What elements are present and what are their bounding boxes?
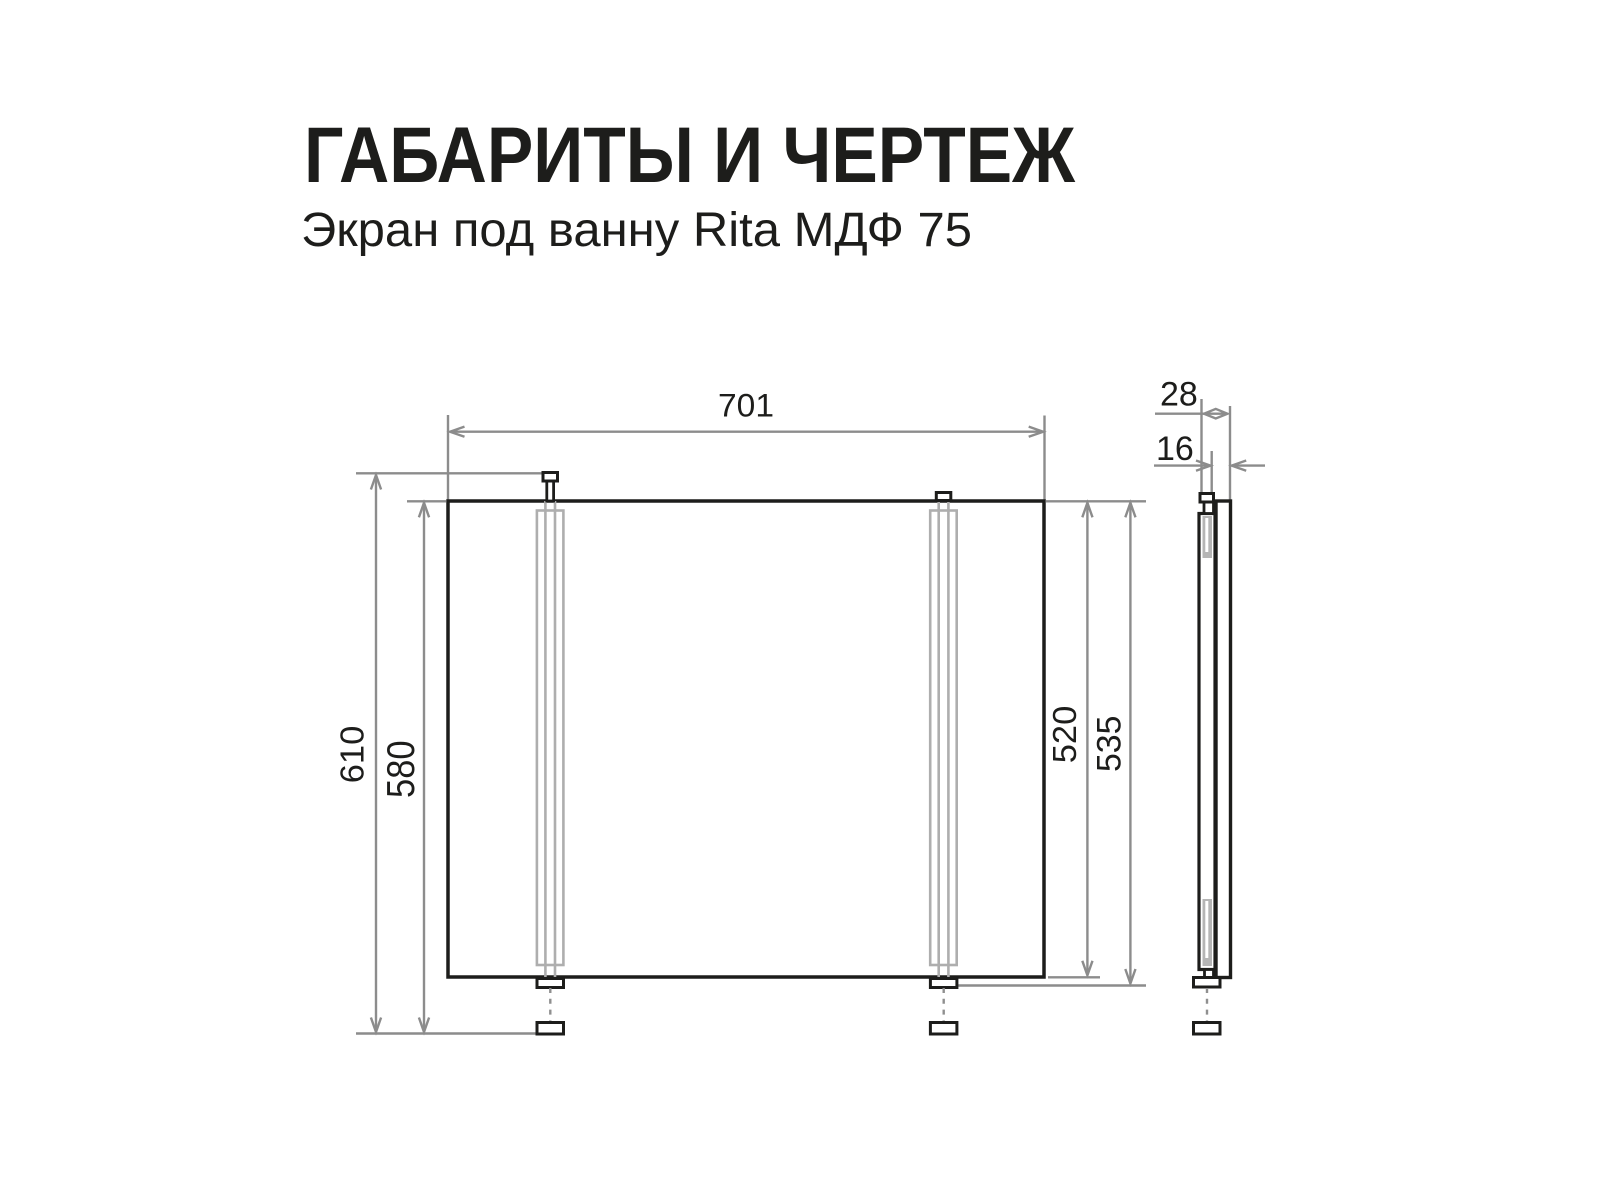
svg-text:535: 535 bbox=[1091, 716, 1129, 773]
svg-text:ГАБАРИТЫ И ЧЕРТЕЖ: ГАБАРИТЫ И ЧЕРТЕЖ bbox=[304, 111, 1076, 199]
svg-text:Экран под ванну Rita МДФ 75: Экран под ванну Rita МДФ 75 bbox=[301, 204, 972, 257]
svg-text:16: 16 bbox=[1156, 430, 1194, 468]
svg-text:580: 580 bbox=[380, 740, 423, 798]
svg-text:28: 28 bbox=[1160, 376, 1198, 414]
svg-text:701: 701 bbox=[718, 388, 774, 424]
svg-text:520: 520 bbox=[1046, 706, 1083, 764]
svg-text:610: 610 bbox=[333, 726, 370, 784]
